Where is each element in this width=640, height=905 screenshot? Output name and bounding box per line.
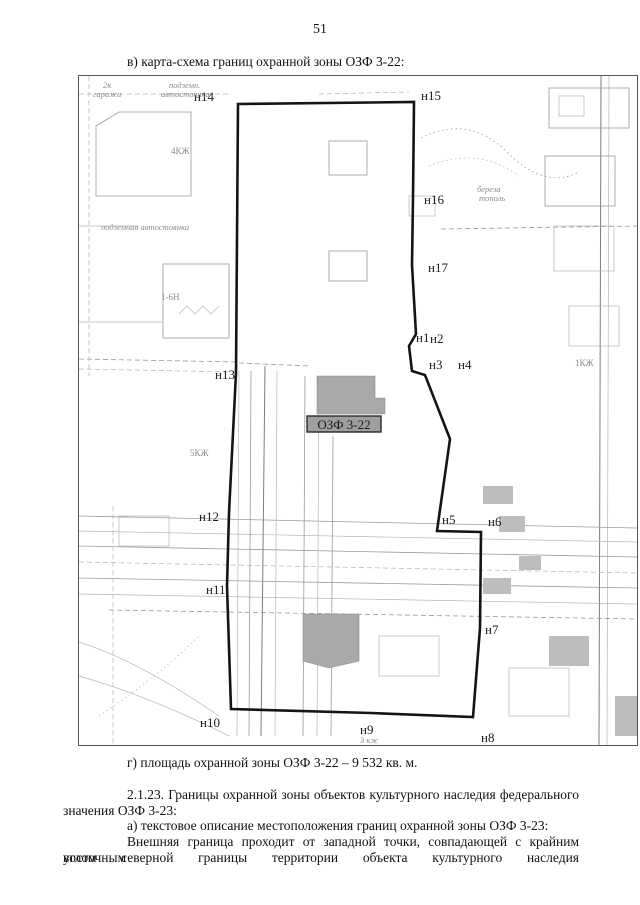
- label-building-16n: 1-6Н: [161, 292, 180, 302]
- label-underground-parking-1b: автостоянка: [161, 89, 210, 99]
- label-underground-parking-2: подземная автостоянка: [101, 222, 189, 232]
- point-label-n3: н3: [429, 357, 442, 372]
- map-svg: ОЗФ 3-22 н1 н2 н3 н4 н5 н6 н7 н8 н9 н10 …: [79, 76, 637, 745]
- label-garage-2: гаражи: [93, 89, 121, 99]
- paragraph-2123-line2: значения ОЗФ 3-23:: [63, 803, 579, 819]
- label-building-1kzh: 1КЖ: [575, 358, 595, 368]
- point-label-n4: н4: [458, 357, 472, 372]
- point-label-n6: н6: [488, 514, 502, 529]
- point-label-n15: н15: [421, 88, 441, 103]
- document-page: 51 в) карта-схема границ охранной зоны О…: [0, 0, 640, 905]
- paragraph-2123-line1: 2.1.23. Границы охранной зоны объектов к…: [63, 787, 579, 803]
- point-label-n17: н17: [428, 260, 448, 275]
- paragraph-outer-boundary-line2: углом северной границы территории объект…: [63, 850, 579, 866]
- point-label-n2: н2: [430, 331, 443, 346]
- label-building-3kzh: 3 кж: [359, 735, 378, 745]
- point-label-n11: н11: [206, 582, 225, 597]
- caption-text-description: а) текстовое описание местоположения гра…: [63, 818, 579, 834]
- point-label-n5: н5: [442, 512, 455, 527]
- map-figure: ОЗФ 3-22 н1 н2 н3 н4 н5 н6 н7 н8 н9 н10 …: [78, 75, 638, 746]
- point-label-n1: н1: [416, 330, 429, 345]
- label-trees-2: тополь: [479, 193, 505, 203]
- point-label-n13: н13: [215, 367, 235, 382]
- label-building-4kzh: 4КЖ: [171, 146, 191, 156]
- point-label-n8: н8: [481, 730, 494, 745]
- point-label-n12: н12: [199, 509, 219, 524]
- point-label-n10: н10: [200, 715, 220, 730]
- caption-zone-area: г) площадь охранной зоны ОЗФ 3-22 – 9 53…: [63, 755, 579, 771]
- page-number: 51: [0, 22, 640, 38]
- point-label-n16: н16: [424, 192, 444, 207]
- zone-label-box: ОЗФ 3-22: [307, 416, 381, 432]
- zone-label: ОЗФ 3-22: [317, 417, 370, 432]
- point-label-n7: н7: [485, 622, 499, 637]
- caption-map-schema: в) карта-схема границ охранной зоны ОЗФ …: [63, 54, 579, 70]
- label-building-5kzh: 5КЖ: [190, 448, 210, 458]
